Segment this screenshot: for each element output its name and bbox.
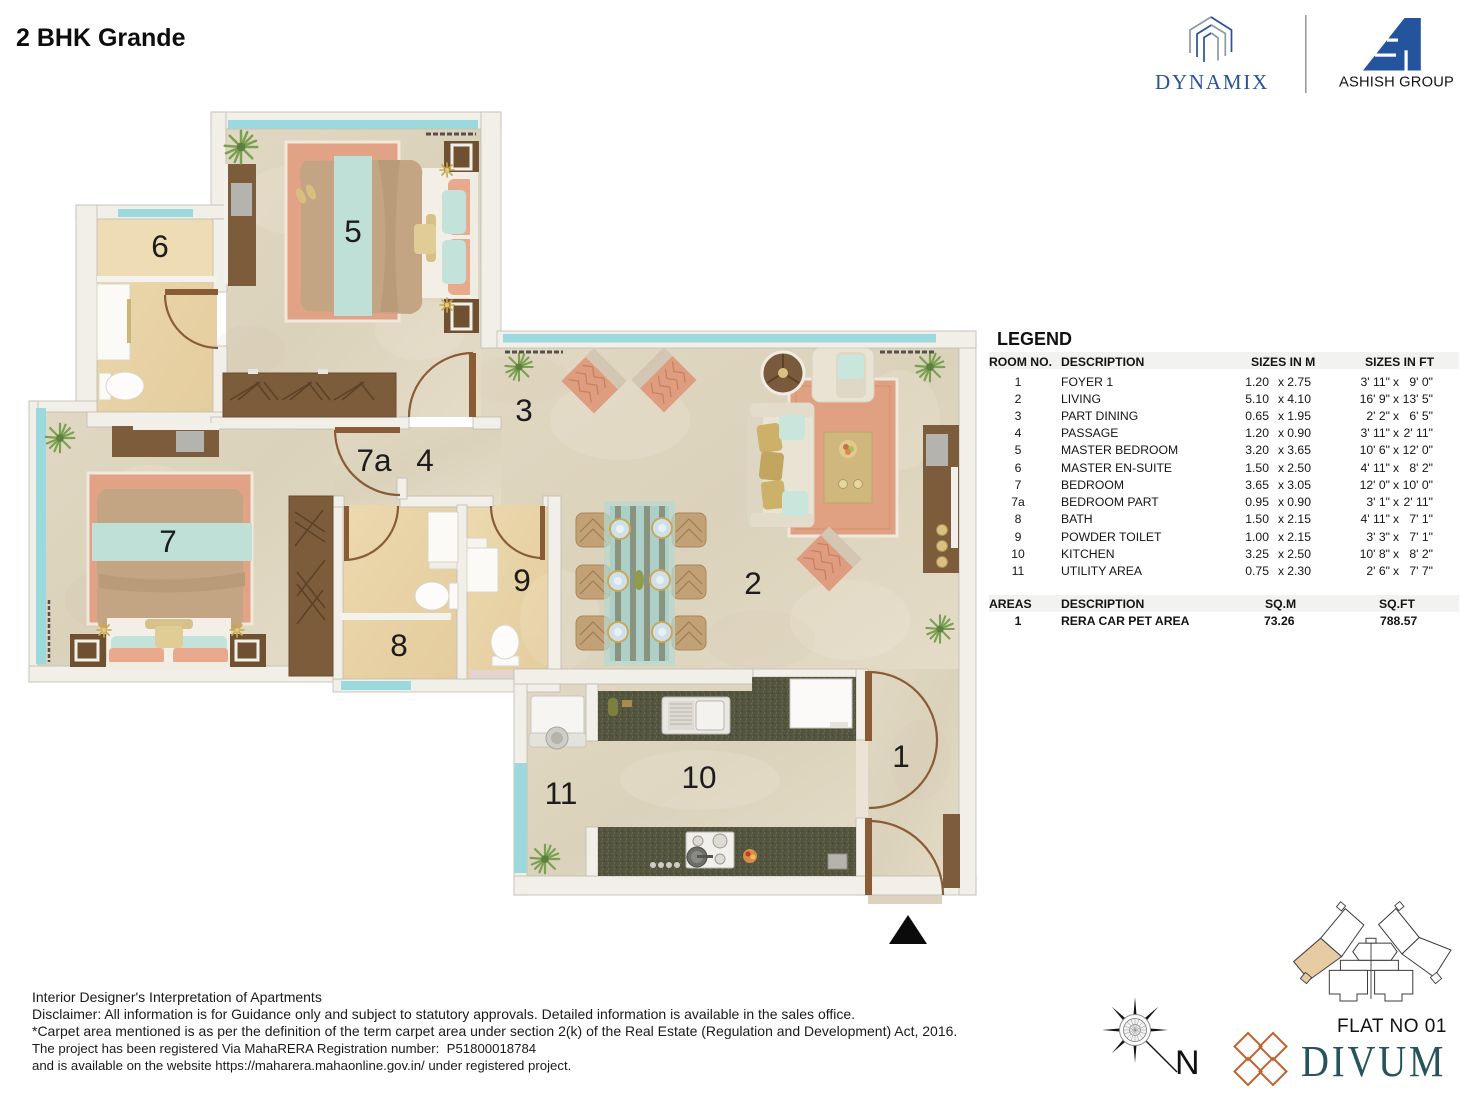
svg-text:9: 9 bbox=[513, 562, 531, 598]
svg-text:7: 7 bbox=[159, 523, 177, 559]
svg-text:8: 8 bbox=[390, 627, 408, 663]
svg-text:4: 4 bbox=[416, 442, 434, 478]
svg-text:10: 10 bbox=[681, 759, 716, 795]
svg-text:5: 5 bbox=[344, 213, 362, 249]
svg-text:7a: 7a bbox=[356, 442, 392, 478]
svg-text:1: 1 bbox=[892, 738, 910, 774]
svg-text:3: 3 bbox=[515, 392, 533, 428]
svg-text:DYNAMIX: DYNAMIX bbox=[1155, 70, 1269, 94]
svg-text:2: 2 bbox=[744, 565, 762, 601]
svg-text:11: 11 bbox=[545, 775, 578, 811]
svg-text:6: 6 bbox=[151, 228, 169, 264]
svg-text:ASHISH GROUP: ASHISH GROUP bbox=[1339, 75, 1454, 91]
